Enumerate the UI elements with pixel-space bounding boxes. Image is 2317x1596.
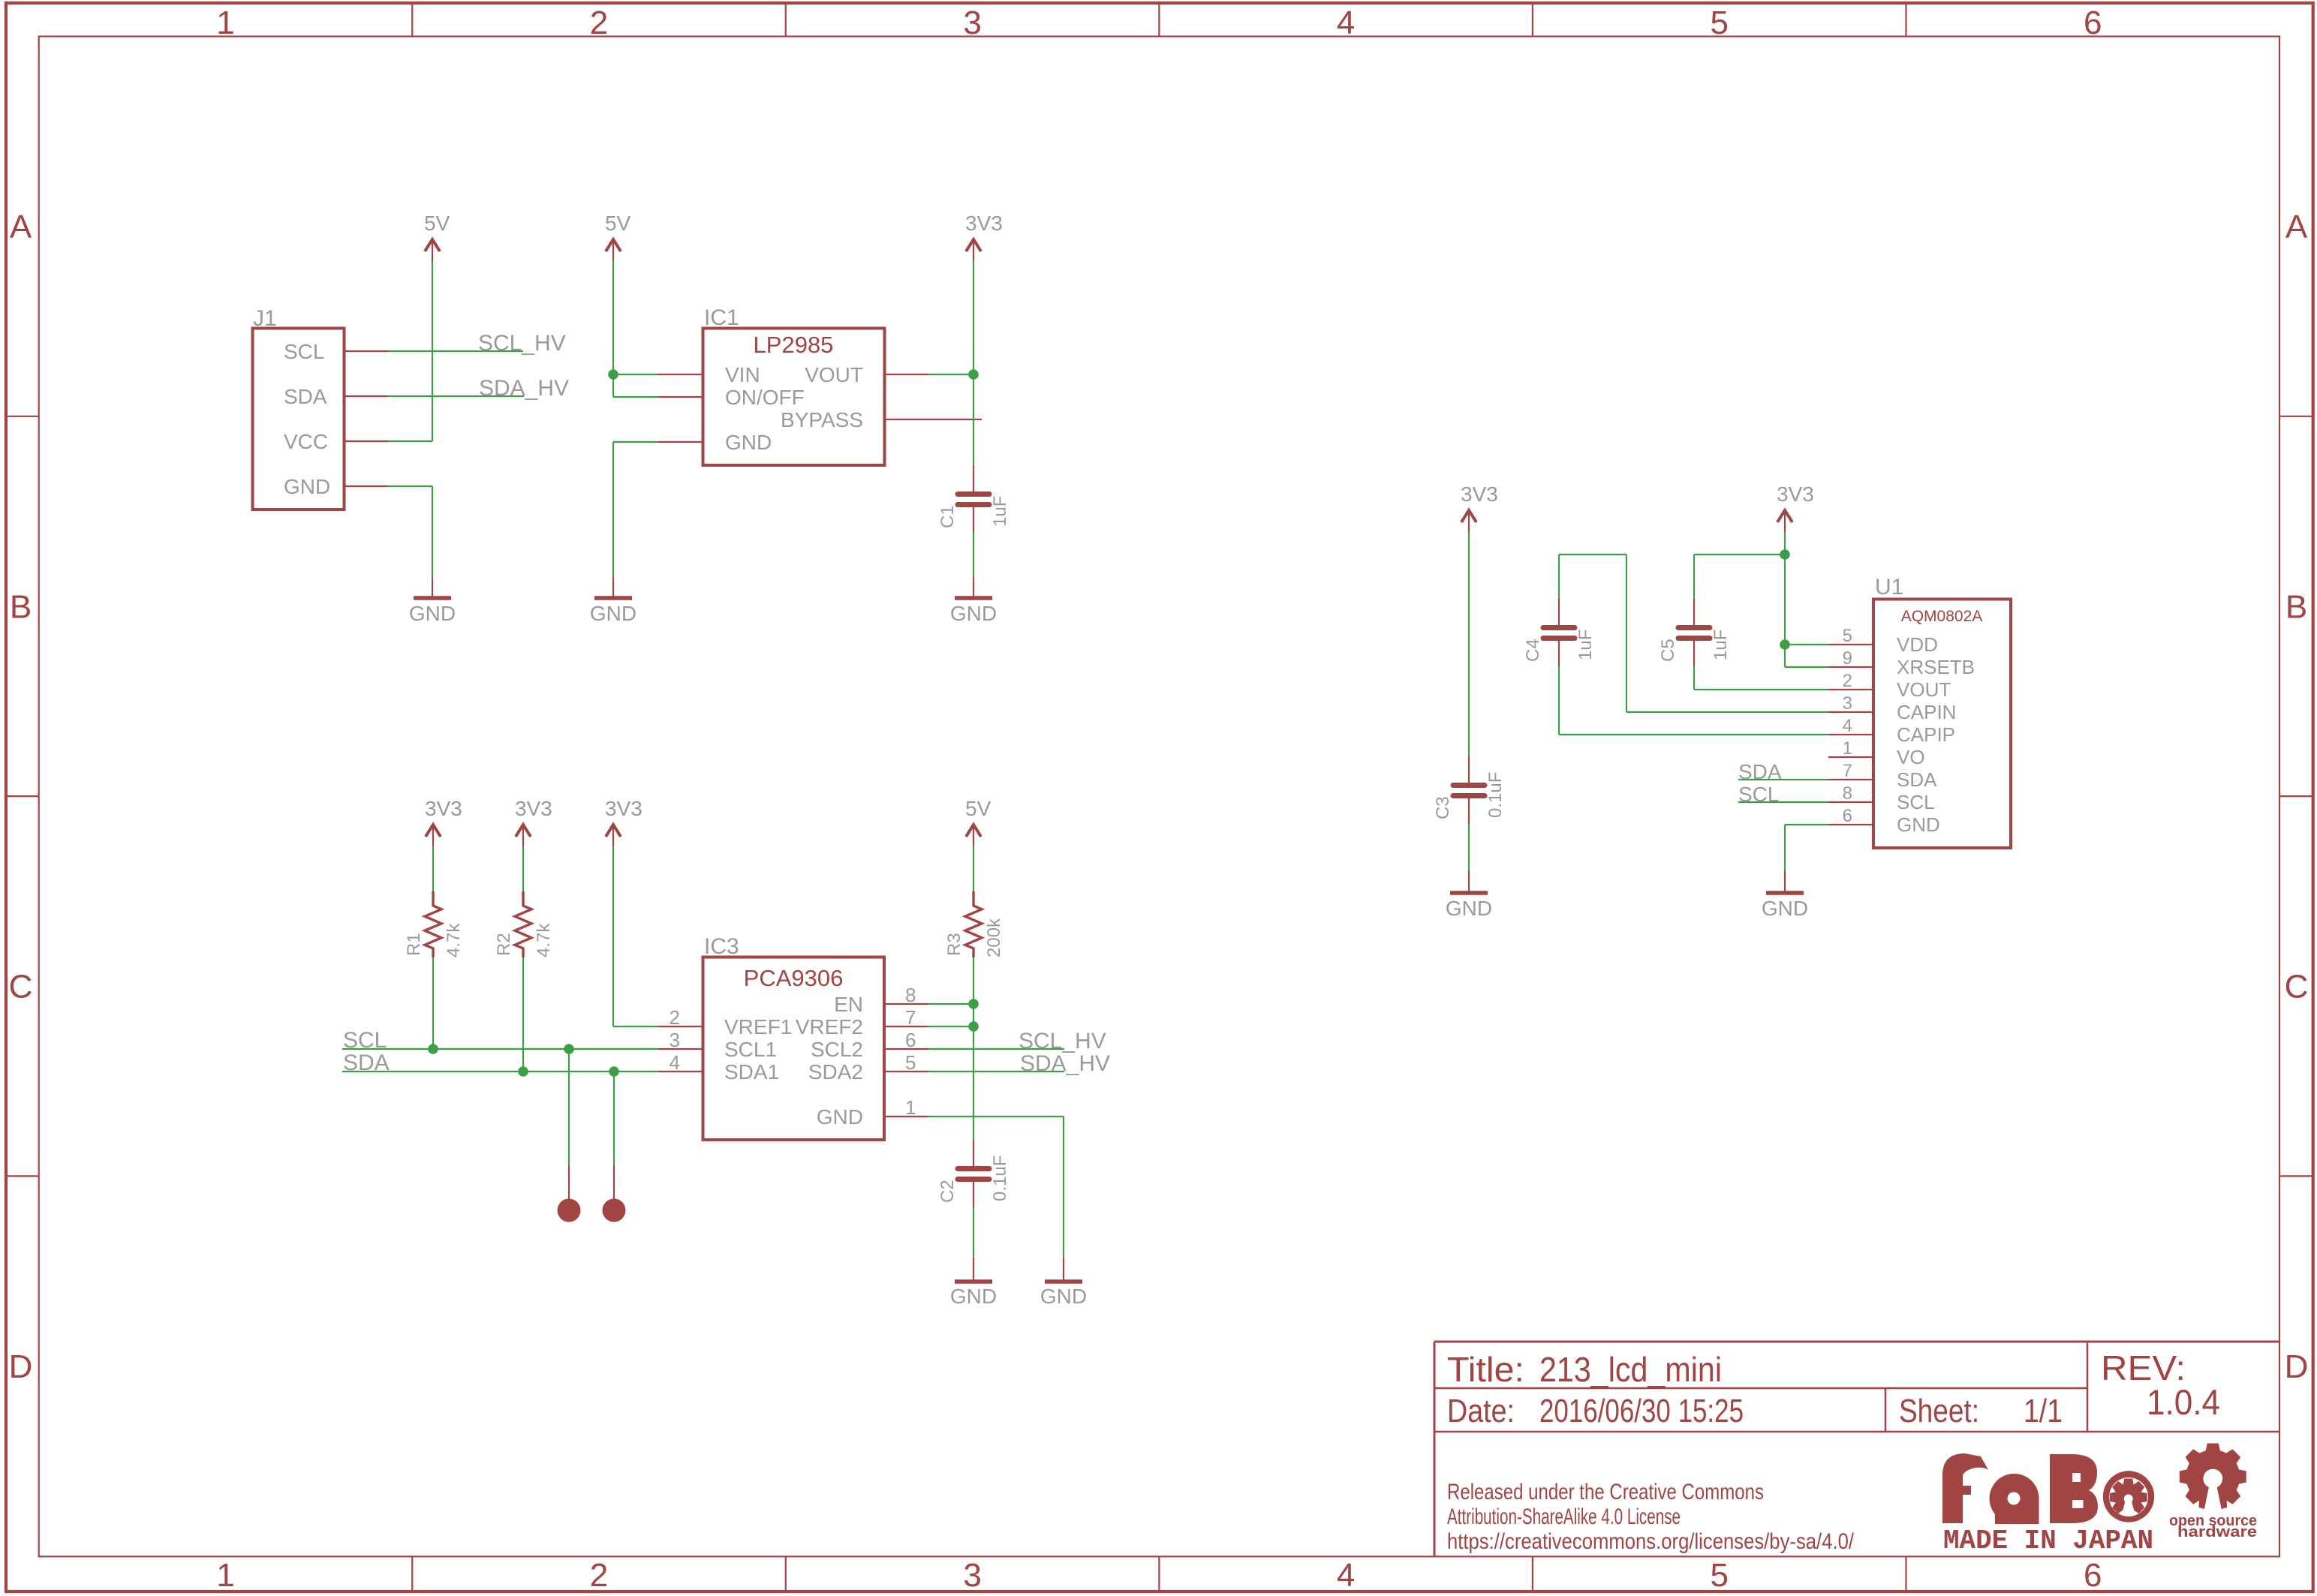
svg-text:ON/OFF: ON/OFF <box>725 386 805 409</box>
svg-text:3V3: 3V3 <box>425 797 462 820</box>
svg-text:GND: GND <box>284 475 330 498</box>
svg-text:VREF1: VREF1 <box>724 1015 792 1038</box>
svg-text:VO: VO <box>1897 746 1925 768</box>
svg-text:5V: 5V <box>424 212 450 235</box>
svg-text:Date:: Date: <box>1447 1393 1515 1429</box>
svg-text:GND: GND <box>1040 1285 1087 1308</box>
svg-text:R2: R2 <box>494 933 514 956</box>
svg-text:BYPASS: BYPASS <box>781 408 863 431</box>
svg-text:3: 3 <box>1843 693 1852 714</box>
svg-text:Title:: Title: <box>1447 1350 1524 1389</box>
svg-text:XRSETB: XRSETB <box>1897 656 1975 678</box>
svg-text:GND: GND <box>725 431 772 454</box>
svg-text:C2: C2 <box>937 1180 958 1203</box>
svg-text:1: 1 <box>905 1096 916 1119</box>
svg-text:Attribution-ShareAlike 4.0 Lic: Attribution-ShareAlike 4.0 License <box>1447 1504 1681 1529</box>
svg-text:GND: GND <box>409 602 456 625</box>
svg-text:4.7k: 4.7k <box>534 923 554 957</box>
svg-text:1: 1 <box>216 1557 234 1594</box>
svg-text:1uF: 1uF <box>1575 630 1596 660</box>
svg-text:9: 9 <box>1843 648 1852 669</box>
svg-text:3V3: 3V3 <box>1461 482 1498 506</box>
svg-text:C: C <box>2285 969 2309 1005</box>
svg-text:D: D <box>9 1348 33 1385</box>
svg-text:SDA: SDA <box>343 1050 390 1075</box>
svg-text:SDA_HV: SDA_HV <box>479 376 569 401</box>
svg-text:2: 2 <box>1843 671 1852 691</box>
svg-text:SCL_HV: SCL_HV <box>478 331 566 356</box>
svg-text:6: 6 <box>2084 1557 2102 1594</box>
svg-text:3: 3 <box>670 1029 680 1051</box>
svg-text:4: 4 <box>1337 1557 1355 1594</box>
svg-text:SDA: SDA <box>1738 760 1782 783</box>
svg-text:1: 1 <box>1843 738 1852 759</box>
svg-text:hardware: hardware <box>2177 1524 2257 1540</box>
svg-text:SDA_HV: SDA_HV <box>1020 1051 1110 1076</box>
svg-text:GND: GND <box>950 602 997 625</box>
svg-text:4: 4 <box>1843 716 1852 736</box>
svg-text:GND: GND <box>1762 897 1808 920</box>
svg-text:SCL: SCL <box>1738 783 1779 806</box>
svg-text:B: B <box>10 588 32 625</box>
svg-text:GND: GND <box>950 1285 997 1308</box>
svg-text:GND: GND <box>817 1105 863 1129</box>
svg-text:3V3: 3V3 <box>965 212 1003 235</box>
svg-text:Sheet:: Sheet: <box>1899 1393 1979 1429</box>
svg-text:VREF2: VREF2 <box>796 1015 863 1038</box>
svg-text:R3: R3 <box>944 933 964 956</box>
svg-text:3: 3 <box>963 5 981 41</box>
svg-text:4: 4 <box>1337 5 1355 41</box>
svg-text:AQM0802A: AQM0802A <box>1901 608 1983 625</box>
svg-text:8: 8 <box>1843 783 1852 804</box>
svg-text:SCL: SCL <box>1897 791 1935 813</box>
svg-text:1: 1 <box>216 5 234 41</box>
svg-text:2016/06/30 15:25: 2016/06/30 15:25 <box>1539 1393 1744 1429</box>
svg-text:213_lcd_mini: 213_lcd_mini <box>1539 1350 1722 1389</box>
svg-text:SDA: SDA <box>1897 768 1937 791</box>
svg-text:GND: GND <box>590 602 636 625</box>
svg-text:5V: 5V <box>965 797 991 820</box>
svg-text:SCL: SCL <box>284 340 324 363</box>
svg-text:5: 5 <box>905 1051 916 1074</box>
svg-text:VDD: VDD <box>1897 633 1938 656</box>
svg-text:3V3: 3V3 <box>605 797 642 820</box>
svg-text:200k: 200k <box>984 918 1004 957</box>
svg-text:B: B <box>2285 588 2307 625</box>
svg-text:SCL_HV: SCL_HV <box>1019 1029 1106 1053</box>
svg-text:SCL1: SCL1 <box>724 1038 777 1061</box>
svg-text:2: 2 <box>590 5 608 41</box>
svg-text:1.0.4: 1.0.4 <box>2147 1382 2220 1422</box>
svg-text:GND: GND <box>1446 897 1492 920</box>
svg-text:0.1uF: 0.1uF <box>1485 772 1506 818</box>
svg-text:VOUT: VOUT <box>805 363 863 386</box>
svg-text:1uF: 1uF <box>1711 630 1731 660</box>
svg-text:LP2985: LP2985 <box>754 332 834 358</box>
svg-text:CAPIN: CAPIN <box>1897 701 1956 723</box>
svg-text:U1: U1 <box>1875 575 1903 600</box>
svg-text:A: A <box>10 209 32 245</box>
svg-text:4.7k: 4.7k <box>444 923 464 957</box>
svg-text:4: 4 <box>670 1051 680 1074</box>
svg-text:5: 5 <box>1710 1557 1728 1594</box>
svg-text:MADE IN JAPAN: MADE IN JAPAN <box>1943 1525 2153 1556</box>
svg-text:5V: 5V <box>605 212 631 235</box>
svg-text:C4: C4 <box>1523 639 1543 662</box>
svg-text:6: 6 <box>2084 5 2102 41</box>
svg-text:8: 8 <box>905 984 916 1006</box>
svg-text:0.1uF: 0.1uF <box>990 1156 1010 1201</box>
svg-text:5: 5 <box>1843 626 1852 646</box>
svg-text:VCC: VCC <box>284 430 328 453</box>
svg-text:2: 2 <box>590 1557 608 1594</box>
svg-text:6: 6 <box>905 1029 916 1051</box>
svg-text:PCA9306: PCA9306 <box>744 965 844 991</box>
svg-text:5: 5 <box>1710 5 1728 41</box>
svg-text:3: 3 <box>963 1557 981 1594</box>
svg-text:C5: C5 <box>1658 639 1678 662</box>
svg-text:https://creativecommons.org/li: https://creativecommons.org/licenses/by-… <box>1447 1529 1855 1554</box>
svg-text:A: A <box>2285 209 2308 245</box>
svg-text:1/1: 1/1 <box>2024 1393 2063 1429</box>
svg-text:VIN: VIN <box>725 363 760 386</box>
svg-text:SCL2: SCL2 <box>811 1038 863 1061</box>
svg-text:SDA1: SDA1 <box>724 1060 779 1084</box>
svg-text:R1: R1 <box>404 933 424 956</box>
svg-text:J1: J1 <box>253 306 277 331</box>
svg-text:C: C <box>9 969 33 1005</box>
svg-text:C1: C1 <box>937 505 958 528</box>
svg-text:GND: GND <box>1897 813 1940 836</box>
svg-text:7: 7 <box>1843 761 1852 781</box>
svg-text:C3: C3 <box>1433 796 1453 819</box>
svg-text:CAPIP: CAPIP <box>1897 723 1955 746</box>
svg-text:IC3: IC3 <box>704 934 739 959</box>
svg-text:6: 6 <box>1843 806 1852 826</box>
svg-text:VOUT: VOUT <box>1897 678 1951 701</box>
svg-text:D: D <box>2285 1348 2309 1385</box>
svg-text:SCL: SCL <box>343 1028 387 1053</box>
svg-text:1uF: 1uF <box>990 496 1010 527</box>
svg-text:EN: EN <box>834 993 863 1016</box>
svg-text:3V3: 3V3 <box>515 797 552 820</box>
svg-text:7: 7 <box>905 1006 916 1029</box>
svg-text:SDA2: SDA2 <box>808 1060 863 1084</box>
svg-text:IC1: IC1 <box>704 305 739 330</box>
svg-text:Released under the Creative Co: Released under the Creative Commons <box>1447 1480 1764 1504</box>
svg-text:2: 2 <box>670 1006 680 1029</box>
svg-text:3V3: 3V3 <box>1777 482 1814 506</box>
svg-text:SDA: SDA <box>284 385 327 408</box>
